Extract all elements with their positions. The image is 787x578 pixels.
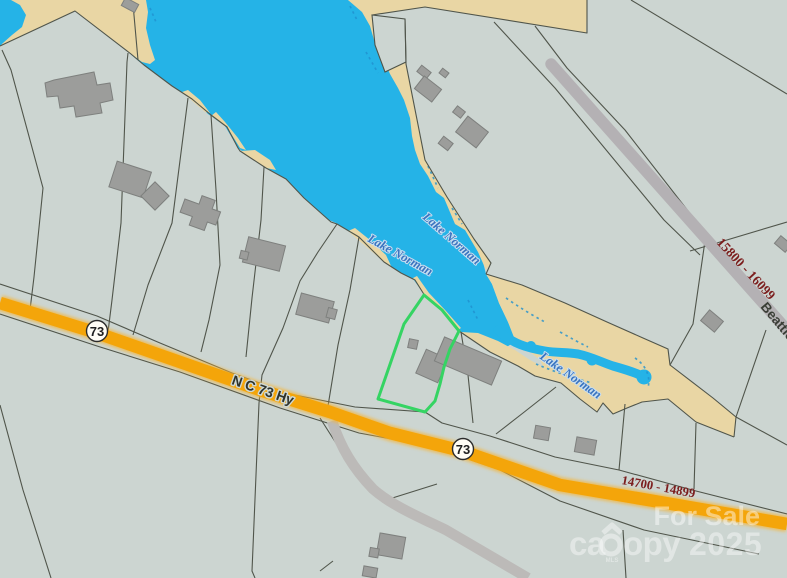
svg-text:opy: opy: [623, 525, 681, 562]
svg-text:73: 73: [456, 442, 470, 457]
svg-text:MLS: MLS: [606, 558, 619, 564]
svg-text:2025: 2025: [689, 526, 762, 562]
svg-text:73: 73: [90, 324, 104, 339]
